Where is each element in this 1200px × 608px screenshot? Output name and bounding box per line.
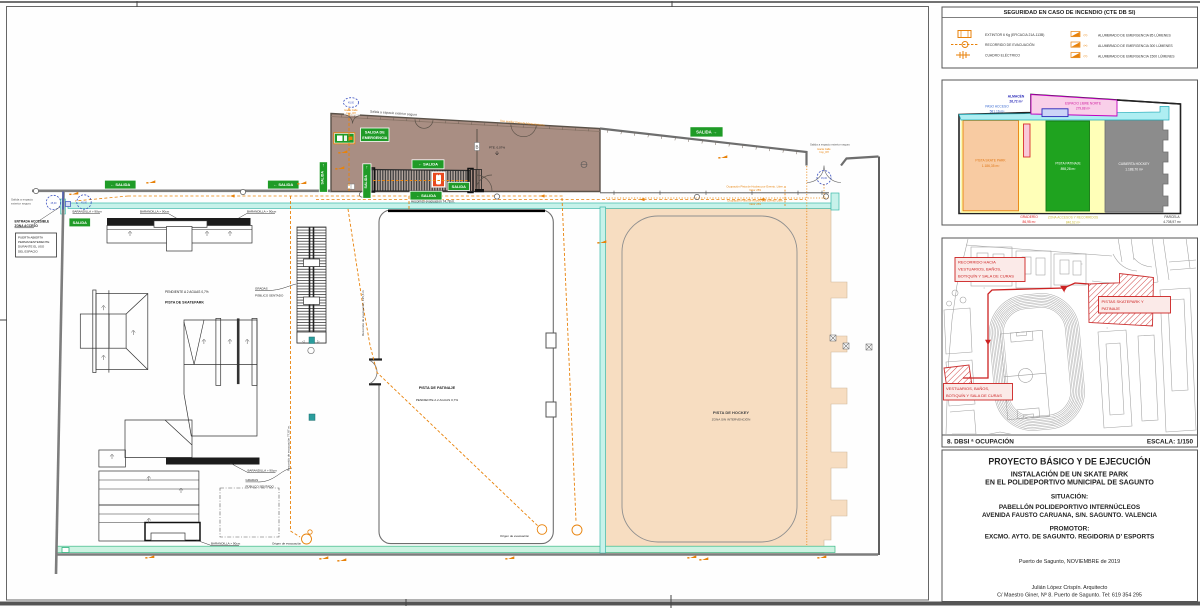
svg-text:ALUMBRADO DE EMERGENCIA 1500 L: ALUMBRADO DE EMERGENCIA 1500 LÚMENES xyxy=(1098,54,1175,59)
svg-text:EN EL POLIDEPORTIVO MUNICIPAL: EN EL POLIDEPORTIVO MUNICIPAL DE SAGUNTO xyxy=(985,480,1154,487)
svg-text:BARANDILLA > 90cm: BARANDILLA > 90cm xyxy=(140,210,170,214)
svg-text:PATINAJE: PATINAJE xyxy=(1102,306,1121,311)
svg-text:◁: ◁ xyxy=(302,340,305,344)
svg-text:4.708,97 m²: 4.708,97 m² xyxy=(1163,220,1181,224)
svg-text:Origen de evacuación: Origen de evacuación xyxy=(272,542,302,546)
svg-text:SITUACIÓN:: SITUACIÓN: xyxy=(1051,492,1088,501)
svg-text:ZONA SIN INTERVENCIÓN: ZONA SIN INTERVENCIÓN xyxy=(712,417,751,422)
svg-text:CUBIERTA HOCKEY: CUBIERTA HOCKEY xyxy=(1118,162,1150,166)
svg-text:↑: ↑ xyxy=(322,162,324,167)
svg-text:86,95 m²: 86,95 m² xyxy=(1022,220,1036,224)
svg-text:Imp_Off: Imp_Off xyxy=(819,150,828,154)
svg-text:(=): (=) xyxy=(1084,44,1088,48)
svg-text:AVENIDA FAUSTO CARUANA, S/N. S: AVENIDA FAUSTO CARUANA, S/N. SAGUNTO. VA… xyxy=(982,512,1157,519)
svg-text:EMERGENCIA: EMERGENCIA xyxy=(362,136,387,140)
svg-text:PTE. 0,07%: PTE. 0,07% xyxy=(489,146,505,150)
svg-text:PABELLÓN POLIDEPORTIVO INTERNÚ: PABELLÓN POLIDEPORTIVO INTERNÚCLEOS xyxy=(999,502,1141,511)
svg-text:PROMOTOR:: PROMOTOR: xyxy=(1050,526,1090,533)
svg-text:45,00: 45,00 xyxy=(348,102,355,105)
svg-text:PARCELA: PARCELA xyxy=(1164,215,1180,219)
svg-text:RECORRIDO DE EVACUACIÓN: RECORRIDO DE EVACUACIÓN xyxy=(985,42,1035,47)
svg-text:ESCALA: 1/150: ESCALA: 1/150 xyxy=(1147,439,1194,446)
svg-text:B: B xyxy=(475,145,478,150)
svg-text:GRADAS: GRADAS xyxy=(246,478,259,482)
svg-text:Valor 259: Valor 259 xyxy=(749,202,761,206)
svg-text:GRADERÍO: GRADERÍO xyxy=(1020,215,1038,219)
svg-text:Origen de evacuación: Origen de evacuación xyxy=(500,534,530,538)
svg-text:SALIDA: SALIDA xyxy=(73,221,87,225)
svg-text:SALIDA: SALIDA xyxy=(320,171,324,185)
svg-text:PERMANENTEMENTE: PERMANENTEMENTE xyxy=(18,240,49,244)
svg-text:Valor 259: Valor 259 xyxy=(749,188,761,192)
svg-text:BARANDILLA > 90cm: BARANDILLA > 90cm xyxy=(247,210,277,214)
svg-text:SALIDA DE: SALIDA DE xyxy=(365,131,385,135)
svg-text:45,00: 45,00 xyxy=(821,177,828,180)
svg-text:DURANTE EL USO: DURANTE EL USO xyxy=(18,245,45,249)
svg-text:SALIDA: SALIDA xyxy=(364,175,368,189)
svg-text:Imp_Off: Imp_Off xyxy=(346,111,355,115)
svg-text:EXCMO. AYTO. DE SAGUNTO. REGID: EXCMO. AYTO. DE SAGUNTO. REGIDORIA D’ ES… xyxy=(985,534,1155,541)
svg-text:BARANDILLA > 90cm: BARANDILLA > 90cm xyxy=(248,469,278,473)
svg-text:1.188,70 m²: 1.188,70 m² xyxy=(1125,168,1143,172)
svg-text:PUERTA ABIERTA: PUERTA ABIERTA xyxy=(18,236,43,240)
svg-text:45,00: 45,00 xyxy=(51,202,58,205)
svg-text:PISTA DE SKATEPARK: PISTA DE SKATEPARK xyxy=(165,301,204,305)
svg-text:← SALIDA: ← SALIDA xyxy=(418,162,438,167)
svg-text:RECORRIDO HACIA: RECORRIDO HACIA xyxy=(958,260,996,265)
svg-text:← SALIDA: ← SALIDA xyxy=(273,182,293,187)
svg-text:26,72 m²: 26,72 m² xyxy=(1009,100,1023,104)
svg-text:VESTUARIOS, BAÑOS,: VESTUARIOS, BAÑOS, xyxy=(946,386,989,391)
svg-text:PISTA PATINAJE: PISTA PATINAJE xyxy=(1055,162,1081,166)
svg-text:ALUMBRADO DE EMERGENCIA 85 LÚM: ALUMBRADO DE EMERGENCIA 85 LÚMENES xyxy=(1098,33,1171,38)
svg-text:BOTIQUÍN Y SALA DE CURAS: BOTIQUÍN Y SALA DE CURAS xyxy=(958,274,1014,279)
svg-text:BARANDILLA > 90cm: BARANDILLA > 90cm xyxy=(73,210,103,214)
svg-text:CUADRO ELÉCTRICO: CUADRO ELÉCTRICO xyxy=(985,53,1020,58)
svg-text:1.186,35 m²: 1.186,35 m² xyxy=(982,164,1000,168)
svg-text:PISTA SKATE PARK: PISTA SKATE PARK xyxy=(975,159,1006,163)
svg-text:Julián López Crispín. Arquitec: Julián López Crispín. Arquitecto xyxy=(1032,585,1108,591)
svg-text:Salida a espacio exterior segu: Salida a espacio exterior seguro xyxy=(810,143,850,147)
svg-text:BARANDILLA > 90cm: BARANDILLA > 90cm xyxy=(211,542,241,546)
svg-text:SALIDA →: SALIDA → xyxy=(696,129,717,134)
svg-text:(=): (=) xyxy=(1084,54,1088,58)
svg-text:ESPACIO LIBRE NORTE: ESPACIO LIBRE NORTE xyxy=(1065,102,1101,106)
svg-text:PROYECTO BÁSICO Y DE EJECUCIÓN: PROYECTO BÁSICO Y DE EJECUCIÓN xyxy=(988,456,1150,467)
svg-text:Recorrido de evacuación, 135,6: Recorrido de evacuación, 135,6 m xyxy=(361,290,365,336)
svg-text:← SALIDA: ← SALIDA xyxy=(110,182,130,187)
svg-text:(=): (=) xyxy=(1084,33,1088,37)
svg-text:C/ Maestro Giner, Nº 8. Puerto: C/ Maestro Giner, Nº 8. Puerto de Sagunt… xyxy=(997,593,1142,599)
svg-text:exterior seguro: exterior seguro xyxy=(11,202,31,206)
svg-text:898,28 m²: 898,28 m² xyxy=(1061,167,1077,171)
svg-text:← SALIDA: ← SALIDA xyxy=(416,193,436,198)
svg-text:PASO ACCESO: PASO ACCESO xyxy=(985,105,1009,109)
svg-text:SALIDA: SALIDA xyxy=(452,185,466,189)
svg-text:ALMACÉN: ALMACÉN xyxy=(1008,94,1025,99)
svg-text:PENDIENTE A 2 AGUAS 0,7%: PENDIENTE A 2 AGUAS 0,7% xyxy=(165,290,209,294)
svg-text:PISTAS SKATEPARK Y: PISTAS SKATEPARK Y xyxy=(1102,299,1144,304)
svg-text:ZONA ACCESOS Y RECORRIDOS: ZONA ACCESOS Y RECORRIDOS xyxy=(1048,216,1098,220)
svg-text:↑: ↑ xyxy=(366,164,368,169)
svg-text:SEGURIDAD EN CASO DE INCENDIO: SEGURIDAD EN CASO DE INCENDIO (CTE DB SI… xyxy=(1004,10,1136,16)
svg-text:PISTA DE PATINAJE: PISTA DE PATINAJE xyxy=(419,386,456,390)
svg-text:ZONA ACCESO: ZONA ACCESO xyxy=(15,224,39,228)
svg-text:846,62 m²: 846,62 m² xyxy=(1066,221,1080,225)
svg-text:GRADAS: GRADAS xyxy=(255,287,268,291)
svg-text:EXTINTOR 6 Kg (EFICACIA 21A-11: EXTINTOR 6 Kg (EFICACIA 21A-113B) xyxy=(985,33,1044,37)
svg-text:ALUMBRADO DE EMERGENCIA 300 LÚ: ALUMBRADO DE EMERGENCIA 300 LÚMENES xyxy=(1098,43,1173,48)
svg-text:581,16 m²: 581,16 m² xyxy=(990,110,1006,114)
svg-text:INSTALACIÓN DE UN SKATE PARK: INSTALACIÓN DE UN SKATE PARK xyxy=(1011,470,1128,479)
svg-text:Puerto de Sagunto, NOVIEMBRE d: Puerto de Sagunto, NOVIEMBRE de 2019 xyxy=(1019,559,1120,565)
svg-text:45,00: 45,00 xyxy=(81,201,88,204)
svg-text:Recorrido de evacuación 77,87: Recorrido de evacuación 77,87 m. xyxy=(287,425,291,471)
svg-text:▷: ▷ xyxy=(317,340,320,344)
svg-text:PÚBLICO SENTADO: PÚBLICO SENTADO xyxy=(255,293,284,298)
svg-text:8. DBSI ª OCUPACIÓN: 8. DBSI ª OCUPACIÓN xyxy=(947,437,1014,446)
svg-text:PENDIENTE A 2 AGUAS 0,7%: PENDIENTE A 2 AGUAS 0,7% xyxy=(416,398,459,402)
svg-text:BOTIQUÍN Y SALA DE CURAS: BOTIQUÍN Y SALA DE CURAS xyxy=(946,393,1002,398)
svg-text:DEL ESPACIO: DEL ESPACIO xyxy=(18,249,38,253)
svg-text:279,88 m²: 279,88 m² xyxy=(1076,107,1090,111)
svg-text:VESTUARIOS, BAÑOS,: VESTUARIOS, BAÑOS, xyxy=(958,267,1001,272)
svg-text:PISTA DE HOCKEY: PISTA DE HOCKEY xyxy=(713,410,750,415)
